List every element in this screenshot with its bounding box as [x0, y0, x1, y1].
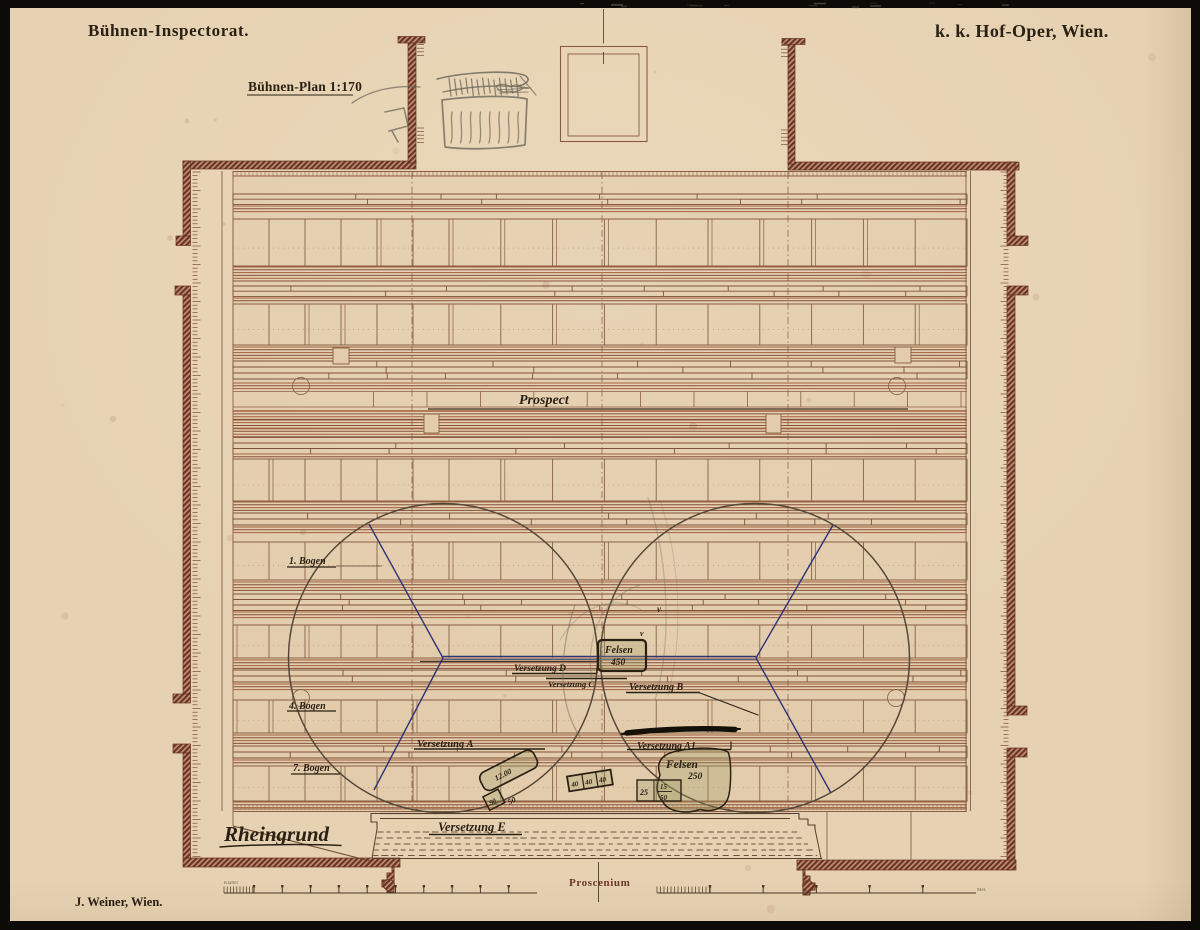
svg-text:Rheingrund: Rheingrund — [223, 822, 330, 846]
svg-text:Met.: Met. — [977, 888, 986, 893]
svg-text:k. k. Hof-Oper, Wien.: k. k. Hof-Oper, Wien. — [935, 21, 1109, 41]
svg-text:v: v — [640, 629, 644, 638]
svg-text:Felsen: Felsen — [604, 645, 633, 656]
svg-text:Felsen: Felsen — [665, 759, 698, 771]
svg-text:50: 50 — [660, 794, 668, 802]
svg-text:25: 25 — [639, 788, 648, 797]
svg-text:Proscenium: Proscenium — [569, 877, 630, 889]
svg-text:Bühnen-Inspectorat.: Bühnen-Inspectorat. — [88, 21, 249, 40]
svg-text:Prospect: Prospect — [519, 393, 570, 408]
svg-text:450: 450 — [610, 658, 626, 668]
svg-text:Klafter: Klafter — [224, 881, 238, 886]
svg-text:Versetzung A: Versetzung A — [417, 739, 474, 750]
svg-text:Versetzung A1: Versetzung A1 — [637, 741, 696, 752]
svg-text:4. Bogen: 4. Bogen — [288, 701, 326, 712]
svg-text:Versetzung C: Versetzung C — [548, 679, 594, 689]
svg-text:J. Weiner, Wien.: J. Weiner, Wien. — [75, 895, 162, 909]
svg-text:1. Bogen: 1. Bogen — [289, 556, 326, 567]
svg-text:Versetzung E: Versetzung E — [438, 820, 506, 834]
svg-text:Bühnen-Plan 1:170: Bühnen-Plan 1:170 — [248, 79, 362, 94]
svg-text:250: 250 — [687, 772, 703, 782]
svg-text:Versetzung B: Versetzung B — [629, 682, 684, 693]
svg-text:Versetzung D: Versetzung D — [514, 664, 566, 674]
svg-text:15: 15 — [660, 783, 668, 791]
svg-text:7. Bogen: 7. Bogen — [293, 763, 330, 774]
